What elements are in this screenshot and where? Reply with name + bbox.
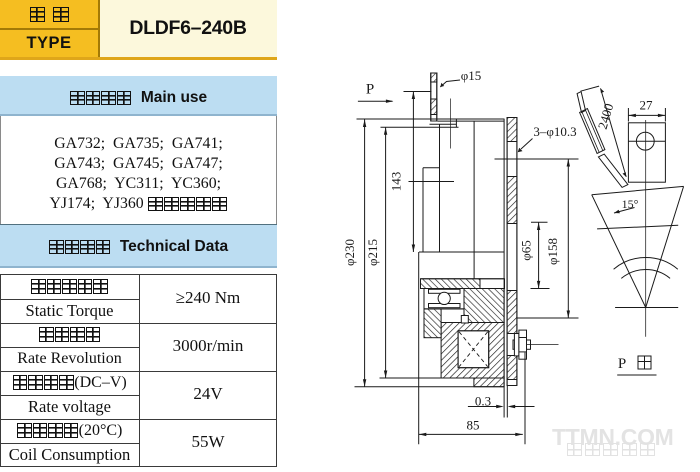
svg-text:3–φ10.3: 3–φ10.3 [533, 124, 576, 139]
svg-text:143: 143 [389, 172, 404, 192]
svg-text:φ15: φ15 [461, 68, 482, 83]
svg-text:85: 85 [467, 418, 480, 433]
svg-text:φ158: φ158 [545, 238, 560, 265]
svg-text:2400: 2400 [595, 102, 617, 131]
svg-text:φ215: φ215 [365, 239, 380, 266]
svg-text:φ230: φ230 [342, 239, 357, 266]
svg-text:φ65: φ65 [519, 240, 534, 261]
svg-text:15°: 15° [622, 197, 639, 211]
svg-text:P: P [618, 356, 626, 372]
svg-text:27: 27 [640, 98, 654, 113]
svg-text:P: P [366, 82, 374, 98]
svg-text:0.3: 0.3 [475, 394, 491, 409]
